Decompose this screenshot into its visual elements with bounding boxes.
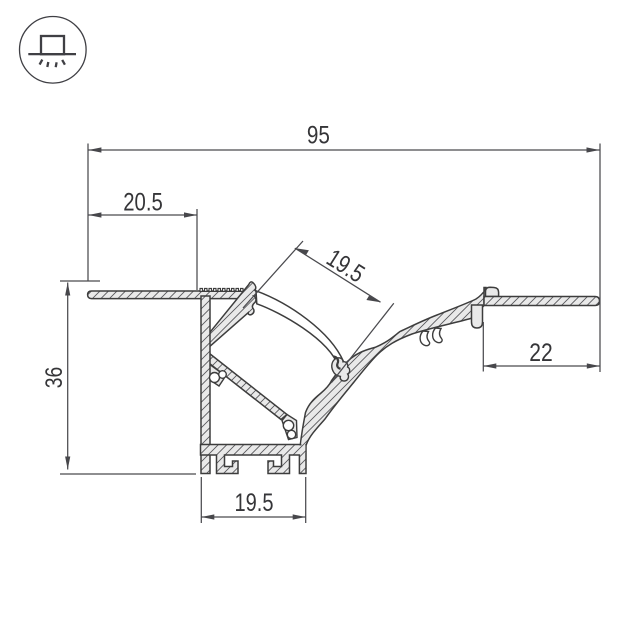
svg-text:20.5: 20.5 (123, 189, 163, 217)
svg-text:22: 22 (529, 339, 553, 367)
svg-text:36: 36 (41, 367, 68, 389)
svg-text:95: 95 (307, 122, 330, 150)
svg-text:19.5: 19.5 (235, 489, 274, 517)
